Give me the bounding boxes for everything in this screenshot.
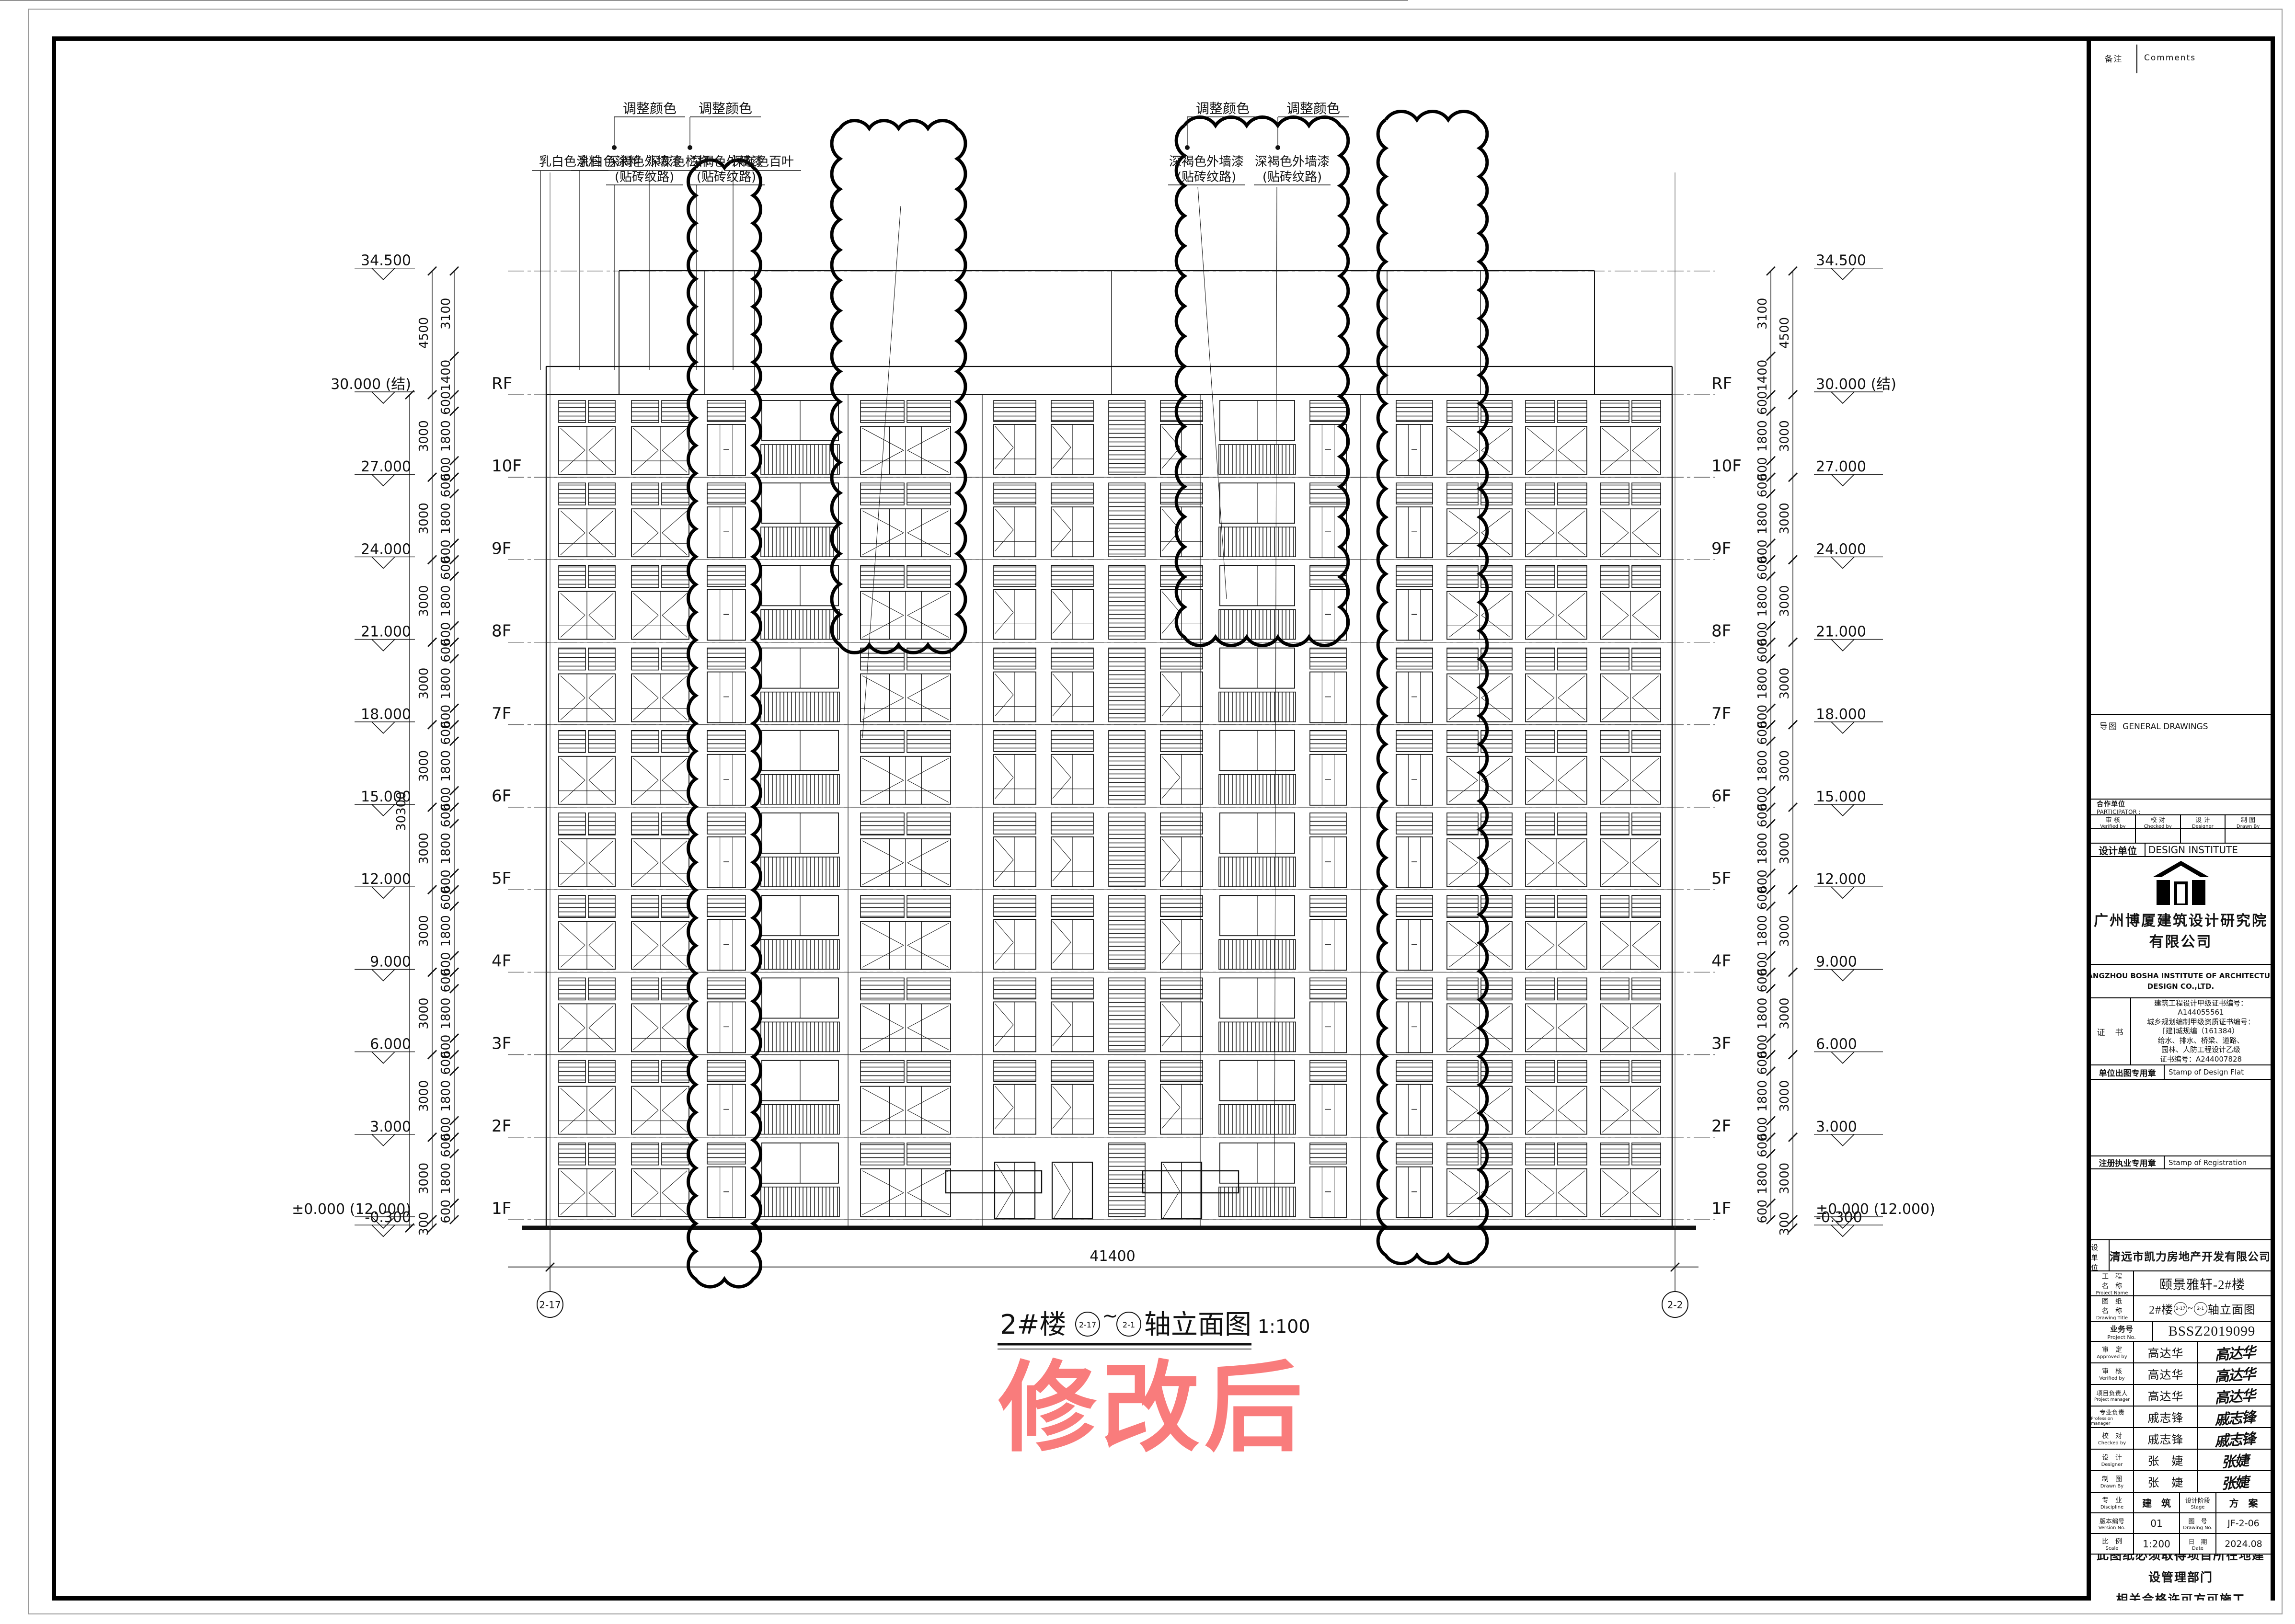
signature: 高达华	[2214, 1384, 2255, 1406]
svg-text:600: 600	[1756, 1200, 1770, 1224]
svg-text:8F: 8F	[1711, 622, 1731, 641]
svg-text:5F: 5F	[1711, 869, 1731, 888]
adjust-color-labels: 调整颜色调整颜色调整颜色调整颜色	[612, 101, 1349, 150]
axis-badge-to: 2-1	[2194, 1302, 2207, 1315]
svg-text:6F: 6F	[492, 787, 511, 806]
drawing-title-row: 图 纸 名 称 Drawing Title 2#楼2-17~2-1轴立面图	[2091, 1295, 2271, 1321]
svg-text:1400: 1400	[1756, 360, 1770, 391]
revision-cloud	[688, 160, 760, 1287]
svg-text:1800: 1800	[439, 420, 453, 452]
certificate-lines: 建筑工程设计甲级证书编号： A144055561 城乡规划编制甲级资质证书编号：…	[2131, 998, 2271, 1064]
svg-text:600: 600	[439, 622, 453, 646]
svg-text:1800: 1800	[439, 1080, 453, 1112]
company-name-cn-2: 有限公司	[2149, 930, 2213, 951]
svg-text:3.000: 3.000	[370, 1119, 411, 1135]
svg-text:4F: 4F	[492, 951, 511, 971]
svg-text:34.500: 34.500	[1816, 252, 1866, 269]
svg-text:(贴砖纹路): (贴砖纹路)	[615, 170, 674, 184]
svg-text:1800: 1800	[439, 1163, 453, 1194]
svg-text:1800: 1800	[1756, 585, 1770, 617]
review-empty-row	[2091, 828, 2271, 843]
drawn-by-row: 制 图Drawn By 张 婕 张婕	[2091, 1470, 2271, 1492]
svg-text:1800: 1800	[1756, 915, 1770, 947]
svg-text:30300: 30300	[394, 791, 409, 831]
svg-text:RF: RF	[492, 374, 512, 393]
revision-stamp: 修改后	[998, 1351, 1308, 1465]
svg-text:RF: RF	[1711, 374, 1732, 393]
svg-text:3000: 3000	[417, 420, 431, 452]
svg-text:30.000 (结): 30.000 (结)	[331, 376, 411, 393]
svg-text:12.000: 12.000	[361, 871, 411, 888]
elevation-drawing: 34.50034.50030.000 (结)30.000 (结)RFRF27.0…	[0, 0, 2295, 1624]
svg-text:1800: 1800	[1756, 1163, 1770, 1194]
svg-text:深褐色外墙漆: 深褐色外墙漆	[1169, 155, 1244, 169]
svg-text:3F: 3F	[492, 1034, 511, 1053]
bottom-dimension: 414002-172-2	[508, 1228, 1698, 1317]
svg-text:600: 600	[1756, 705, 1770, 729]
designer-row: 设 计Designer 张 婕 张婕	[2091, 1449, 2271, 1470]
certificate-label: 证 书	[2091, 998, 2130, 1064]
svg-text:2#楼: 2#楼	[1000, 1309, 1067, 1340]
svg-text:3F: 3F	[1711, 1034, 1731, 1053]
company-block: 广州博厦建筑设计研究院 有限公司	[2091, 856, 2271, 964]
svg-text:2F: 2F	[492, 1117, 511, 1136]
svg-text:3000: 3000	[1778, 585, 1792, 617]
svg-text:3000: 3000	[1778, 997, 1792, 1029]
svg-text:9.000: 9.000	[1816, 953, 1857, 970]
svg-text:300: 300	[417, 1212, 431, 1236]
checked-by-row: 校 对Checked by 戚志锋 戚志锋	[2091, 1427, 2271, 1449]
svg-text:~: ~	[1102, 1305, 1118, 1327]
svg-text:1800: 1800	[439, 915, 453, 947]
svg-text:27.000: 27.000	[1816, 458, 1866, 475]
svg-text:600: 600	[1756, 787, 1770, 811]
svg-text:6.000: 6.000	[370, 1036, 411, 1053]
svg-text:3000: 3000	[417, 833, 431, 864]
comments-label-en: Comments	[2137, 41, 2271, 75]
svg-text:600: 600	[439, 539, 453, 563]
project-no-label: 业务号 Project No.	[2091, 1322, 2153, 1341]
material-labels: 乳白色涂料乳白色涂料深褐色外墙漆(贴砖纹路)深灰色栏杆深褐色外墙漆(贴砖纹路)深…	[532, 155, 1331, 370]
svg-text:3100: 3100	[439, 298, 453, 330]
stamp-design-row: 单位出图专用章 Stamp of Design Flat	[2091, 1064, 2271, 1079]
discipline-stage-row: 专 业Discipline 建 筑 设计阶段Stage 方 案	[2091, 1492, 2271, 1512]
svg-text:600: 600	[439, 705, 453, 729]
svg-text:3000: 3000	[1778, 420, 1792, 452]
svg-text:8F: 8F	[492, 622, 511, 641]
project-no-row: 业务号 Project No. BSSZ2019099	[2091, 1321, 2271, 1341]
svg-text:修改后: 修改后	[998, 1351, 1308, 1465]
svg-text:600: 600	[439, 869, 453, 893]
drawing-title: 2#楼2-17~2-1轴立面图1:100	[998, 1305, 1310, 1349]
svg-text:3000: 3000	[417, 915, 431, 947]
svg-text:1800: 1800	[1756, 997, 1770, 1029]
project-no-value: BSSZ2019099	[2153, 1322, 2271, 1341]
client-row: 建 设 单 位 Client 清远市凯力房地产开发有限公司	[2091, 1239, 2271, 1270]
svg-text:3000: 3000	[1778, 503, 1792, 534]
svg-text:1:100: 1:100	[1258, 1316, 1310, 1337]
svg-text:34.500: 34.500	[361, 252, 411, 269]
drawn-by-header: 制 图Drawn By	[2226, 815, 2271, 828]
comments-label-cn: 备注	[2091, 41, 2136, 75]
company-logo-icon	[2153, 861, 2209, 905]
svg-text:600: 600	[439, 1200, 453, 1224]
svg-text:600: 600	[439, 1117, 453, 1141]
svg-text:3000: 3000	[1778, 915, 1792, 947]
svg-text:18.000: 18.000	[361, 706, 411, 723]
drawing-title-label: 图 纸 名 称 Drawing Title	[2091, 1296, 2134, 1321]
svg-text:1800: 1800	[1756, 420, 1770, 452]
company-name-cn-1: 广州博厦建筑设计研究院	[2094, 909, 2268, 930]
signature: 张婕	[2220, 1470, 2249, 1492]
svg-text:12.000: 12.000	[1816, 871, 1866, 888]
building-facade	[0, 0, 1696, 1228]
svg-text:1800: 1800	[439, 668, 453, 699]
design-institute-en: DESIGN INSTITUTE	[2146, 844, 2271, 856]
svg-text:41400: 41400	[1090, 1248, 1135, 1265]
project-name-label: 工 程 名 称 Project Name	[2091, 1271, 2134, 1295]
svg-text:2-17: 2-17	[539, 1299, 561, 1311]
svg-text:3000: 3000	[417, 668, 431, 699]
svg-text:1F: 1F	[492, 1199, 511, 1218]
signature: 戚志锋	[2214, 1427, 2255, 1449]
svg-text:18.000: 18.000	[1816, 706, 1866, 723]
svg-text:21.000: 21.000	[1816, 624, 1866, 640]
svg-text:1800: 1800	[439, 750, 453, 782]
project-name-row: 工 程 名 称 Project Name 颐景雅轩-2#楼	[2091, 1270, 2271, 1295]
svg-text:4500: 4500	[1778, 317, 1792, 349]
version-drawingno-row: 版本编号Version No. 01 图 号Drawing No. JF-2-0…	[2091, 1512, 2271, 1533]
axis-badge-from: 2-17	[2174, 1302, 2187, 1315]
svg-text:-0.300: -0.300	[1816, 1209, 1862, 1226]
review-header-row: 审 核Verified by 校 对Checked by 设 计Designer…	[2091, 814, 2271, 828]
scale-date-row: 比 例Scale 1:200 日 期Date 2024.08	[2091, 1533, 2271, 1554]
drawing-sheet: 34.50034.50030.000 (结)30.000 (结)RFRF27.0…	[0, 0, 2295, 1624]
approved-by-row: 审 定Approved by 高达华 高达华	[2091, 1341, 2271, 1362]
svg-text:3.000: 3.000	[1816, 1119, 1857, 1135]
svg-text:600: 600	[1756, 391, 1770, 415]
svg-text:1800: 1800	[1756, 1080, 1770, 1112]
project-name-value: 颐景雅轩-2#楼	[2134, 1271, 2271, 1295]
svg-text:1800: 1800	[1756, 503, 1770, 534]
signature: 高达华	[2214, 1341, 2255, 1362]
svg-text:2-17: 2-17	[1079, 1320, 1096, 1329]
svg-text:600: 600	[1756, 869, 1770, 893]
svg-text:24.000: 24.000	[1816, 541, 1866, 558]
svg-text:1800: 1800	[439, 585, 453, 617]
svg-text:3000: 3000	[1778, 833, 1792, 864]
project-manager-row: 项目负责人Project manager 高达华 高达华	[2091, 1384, 2271, 1406]
svg-text:10F: 10F	[492, 457, 522, 476]
svg-text:600: 600	[1756, 952, 1770, 976]
profession-manager-row: 专业负责Profession manager 戚志锋 戚志锋	[2091, 1406, 2271, 1427]
svg-text:1800: 1800	[1756, 668, 1770, 699]
svg-text:600: 600	[1756, 539, 1770, 563]
svg-text:9F: 9F	[1711, 539, 1731, 558]
svg-text:深褐色外墙漆: 深褐色外墙漆	[1255, 155, 1330, 169]
design-institute-cn: 设计单位	[2091, 844, 2145, 856]
stamp-registration-row: 注册执业专用章 Stamp of Registration	[2091, 1155, 2271, 1168]
svg-text:(贴砖纹路): (贴砖纹路)	[1177, 170, 1236, 184]
designer-header: 设 计Designer	[2181, 815, 2226, 828]
svg-text:2-1: 2-1	[1123, 1320, 1135, 1329]
svg-text:9F: 9F	[492, 539, 511, 558]
svg-text:5F: 5F	[492, 869, 511, 888]
svg-text:4500: 4500	[417, 317, 431, 349]
comments-box: 备注 Comments	[2091, 41, 2271, 714]
svg-text:600: 600	[439, 457, 453, 481]
signature: 张婕	[2220, 1449, 2249, 1470]
svg-text:调整颜色: 调整颜色	[699, 101, 752, 116]
svg-text:600: 600	[1756, 1117, 1770, 1141]
svg-text:9.000: 9.000	[370, 953, 411, 970]
svg-text:3000: 3000	[1778, 1080, 1792, 1112]
svg-text:3000: 3000	[417, 585, 431, 617]
certificate-row: 证 书 建筑工程设计甲级证书编号： A144055561 城乡规划编制甲级资质证…	[2091, 997, 2271, 1064]
svg-text:6F: 6F	[1711, 787, 1731, 806]
stamp-registration-area	[2091, 1168, 2271, 1239]
svg-text:2-2: 2-2	[1667, 1299, 1683, 1311]
client-value: 清远市凯力房地产开发有限公司	[2110, 1240, 2271, 1270]
design-institute-row: 设计单位 DESIGN INSTITUTE	[2091, 843, 2271, 856]
svg-text:7F: 7F	[1711, 704, 1731, 723]
svg-text:15.000: 15.000	[1816, 789, 1866, 805]
general-drawings-label: 导图 GENERAL DRAWINGS	[2091, 715, 2208, 732]
svg-text:600: 600	[1756, 1035, 1770, 1059]
svg-text:600: 600	[1756, 622, 1770, 646]
svg-text:3000: 3000	[417, 997, 431, 1029]
svg-text:24.000: 24.000	[361, 541, 411, 558]
title-block: 备注 Comments 导图 GENERAL DRAWINGS 合作单位 PAR…	[2087, 36, 2275, 1601]
svg-text:1800: 1800	[1756, 833, 1770, 864]
verified-by-row: 审 核Verified by 高达华 高达华	[2091, 1362, 2271, 1384]
svg-text:深灰色百叶: 深灰色百叶	[732, 155, 794, 169]
svg-text:600: 600	[439, 391, 453, 415]
svg-text:6.000: 6.000	[1816, 1036, 1857, 1053]
svg-text:3000: 3000	[417, 750, 431, 782]
svg-text:3000: 3000	[1778, 1163, 1792, 1194]
participator-box: 合作单位 PARTICIPATOR :	[2091, 799, 2271, 814]
svg-text:调整颜色: 调整颜色	[1196, 101, 1250, 116]
svg-text:1F: 1F	[1711, 1199, 1731, 1218]
svg-text:600: 600	[439, 952, 453, 976]
stamp-design-area	[2091, 1079, 2271, 1155]
svg-text:3000: 3000	[417, 1080, 431, 1112]
signature: 高达华	[2214, 1362, 2255, 1384]
verified-by-header: 审 核Verified by	[2091, 815, 2136, 828]
svg-text:1400: 1400	[439, 360, 453, 391]
svg-text:调整颜色: 调整颜色	[623, 101, 677, 116]
svg-text:300: 300	[1778, 1212, 1792, 1236]
svg-text:10F: 10F	[1711, 457, 1742, 476]
client-label: 建 设 单 位 Client	[2091, 1240, 2110, 1270]
svg-text:600: 600	[1756, 457, 1770, 481]
svg-text:(贴砖纹路): (贴砖纹路)	[1262, 170, 1322, 184]
svg-text:1800: 1800	[439, 503, 453, 534]
svg-text:3000: 3000	[1778, 750, 1792, 782]
svg-text:调整颜色: 调整颜色	[1286, 101, 1340, 116]
svg-text:1800: 1800	[439, 833, 453, 864]
general-drawings-box: 导图 GENERAL DRAWINGS	[2091, 714, 2271, 799]
svg-text:-0.300: -0.300	[365, 1209, 411, 1226]
signature: 戚志锋	[2214, 1406, 2255, 1427]
footer-note: 此图纸必须取得项目所在地建设管理部门 相关合格许可方可施工	[2091, 1554, 2271, 1601]
company-name-en: GUANGZHOU BOSHA INSTITUTE OF ARCHITECTUR…	[2091, 964, 2271, 997]
svg-text:1800: 1800	[1756, 750, 1770, 782]
drawing-title-value: 2#楼2-17~2-1轴立面图	[2134, 1296, 2271, 1321]
svg-text:30.000 (结): 30.000 (结)	[1816, 376, 1896, 393]
svg-text:2F: 2F	[1711, 1117, 1731, 1136]
svg-text:轴立面图: 轴立面图	[1144, 1309, 1251, 1340]
svg-text:1800: 1800	[439, 997, 453, 1029]
svg-text:7F: 7F	[492, 704, 511, 723]
svg-text:3000: 3000	[417, 503, 431, 534]
svg-text:27.000: 27.000	[361, 458, 411, 475]
svg-text:600: 600	[439, 1035, 453, 1059]
svg-text:3100: 3100	[1756, 298, 1770, 330]
svg-text:600: 600	[439, 787, 453, 811]
svg-text:21.000: 21.000	[361, 624, 411, 640]
svg-text:3000: 3000	[417, 1163, 431, 1194]
svg-text:4F: 4F	[1711, 951, 1731, 971]
checked-by-header: 校 对Checked by	[2136, 815, 2181, 828]
svg-text:3000: 3000	[1778, 668, 1792, 699]
svg-text:(贴砖纹路): (贴砖纹路)	[697, 170, 756, 184]
